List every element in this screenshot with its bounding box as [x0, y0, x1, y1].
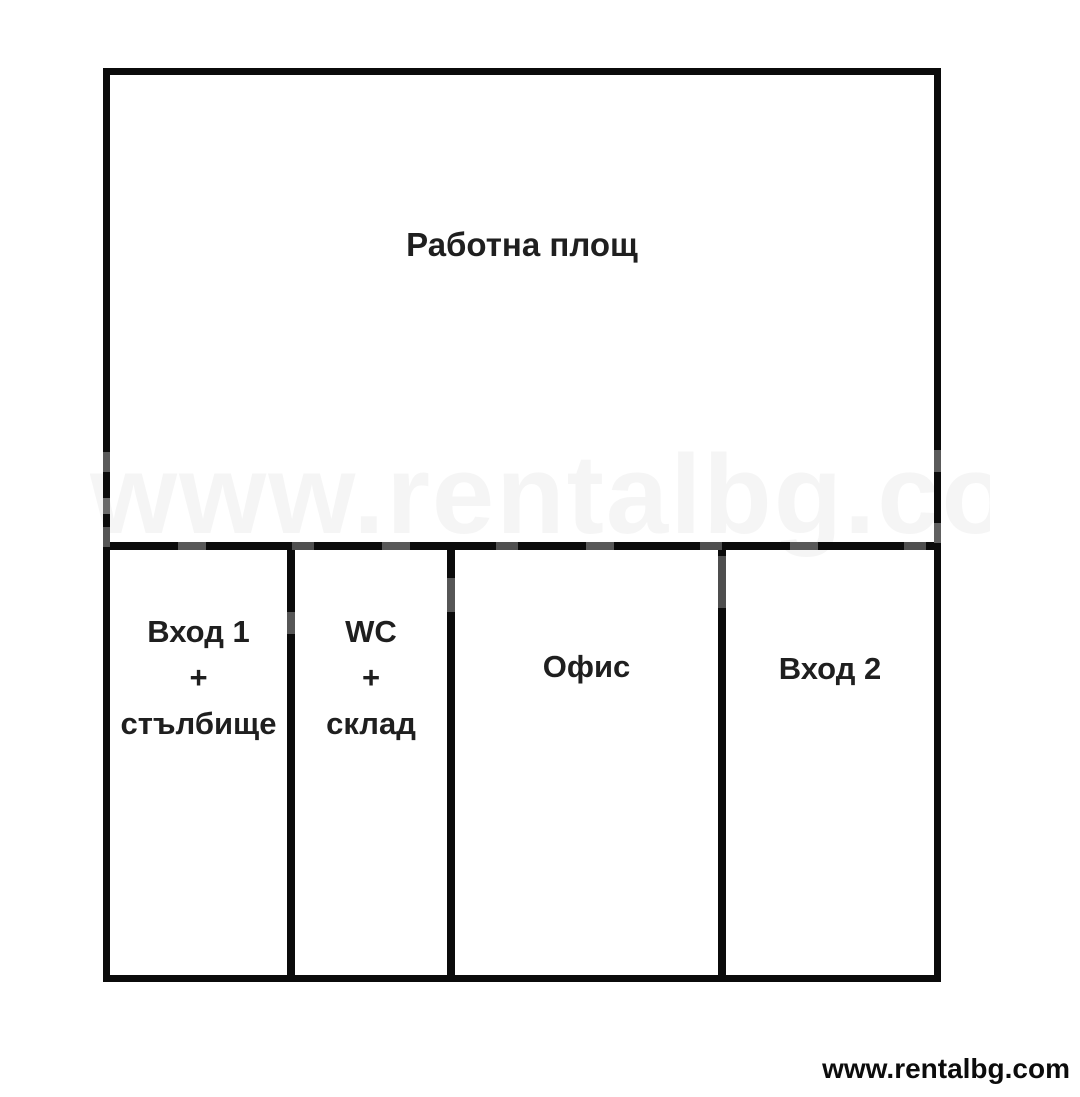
watermark-artifact — [103, 527, 110, 547]
watermark-artifact — [103, 498, 110, 514]
watermark-artifact — [934, 523, 941, 543]
room-office: Офис — [455, 550, 718, 975]
bottom-rooms-row: Вход 1 + стълбище WC + склад Офис Вход 2 — [110, 550, 934, 975]
room-wc-storage-label: WC + склад — [326, 609, 416, 747]
room-entrance-1-staircase-label: Вход 1 + стълбище — [121, 609, 277, 747]
watermark-artifact — [287, 612, 295, 634]
room-work-area: Работна площ — [110, 75, 934, 542]
room-wc-storage: WC + склад — [295, 550, 447, 975]
watermark-artifact — [934, 450, 941, 472]
wall-vertical-2 — [447, 550, 455, 975]
website-watermark: www.rentalbg.com — [822, 1053, 1070, 1085]
floor-plan: Работна площ Вход 1 + стълбище WC + скла… — [103, 68, 941, 982]
room-work-area-label: Работна площ — [406, 222, 638, 268]
room-entrance-2: Вход 2 — [726, 550, 934, 975]
watermark-artifact — [103, 452, 110, 472]
floor-plan-canvas: www.rentalbg.com Работна площ Вход 1 + с… — [0, 0, 1080, 1097]
room-entrance-2-label: Вход 2 — [779, 646, 882, 692]
watermark-artifact — [447, 578, 455, 612]
room-office-label: Офис — [543, 644, 631, 690]
watermark-artifact — [718, 556, 726, 608]
wall-horizontal — [110, 542, 934, 550]
wall-vertical-3 — [718, 550, 726, 975]
room-entrance-1-staircase: Вход 1 + стълбище — [110, 550, 287, 975]
